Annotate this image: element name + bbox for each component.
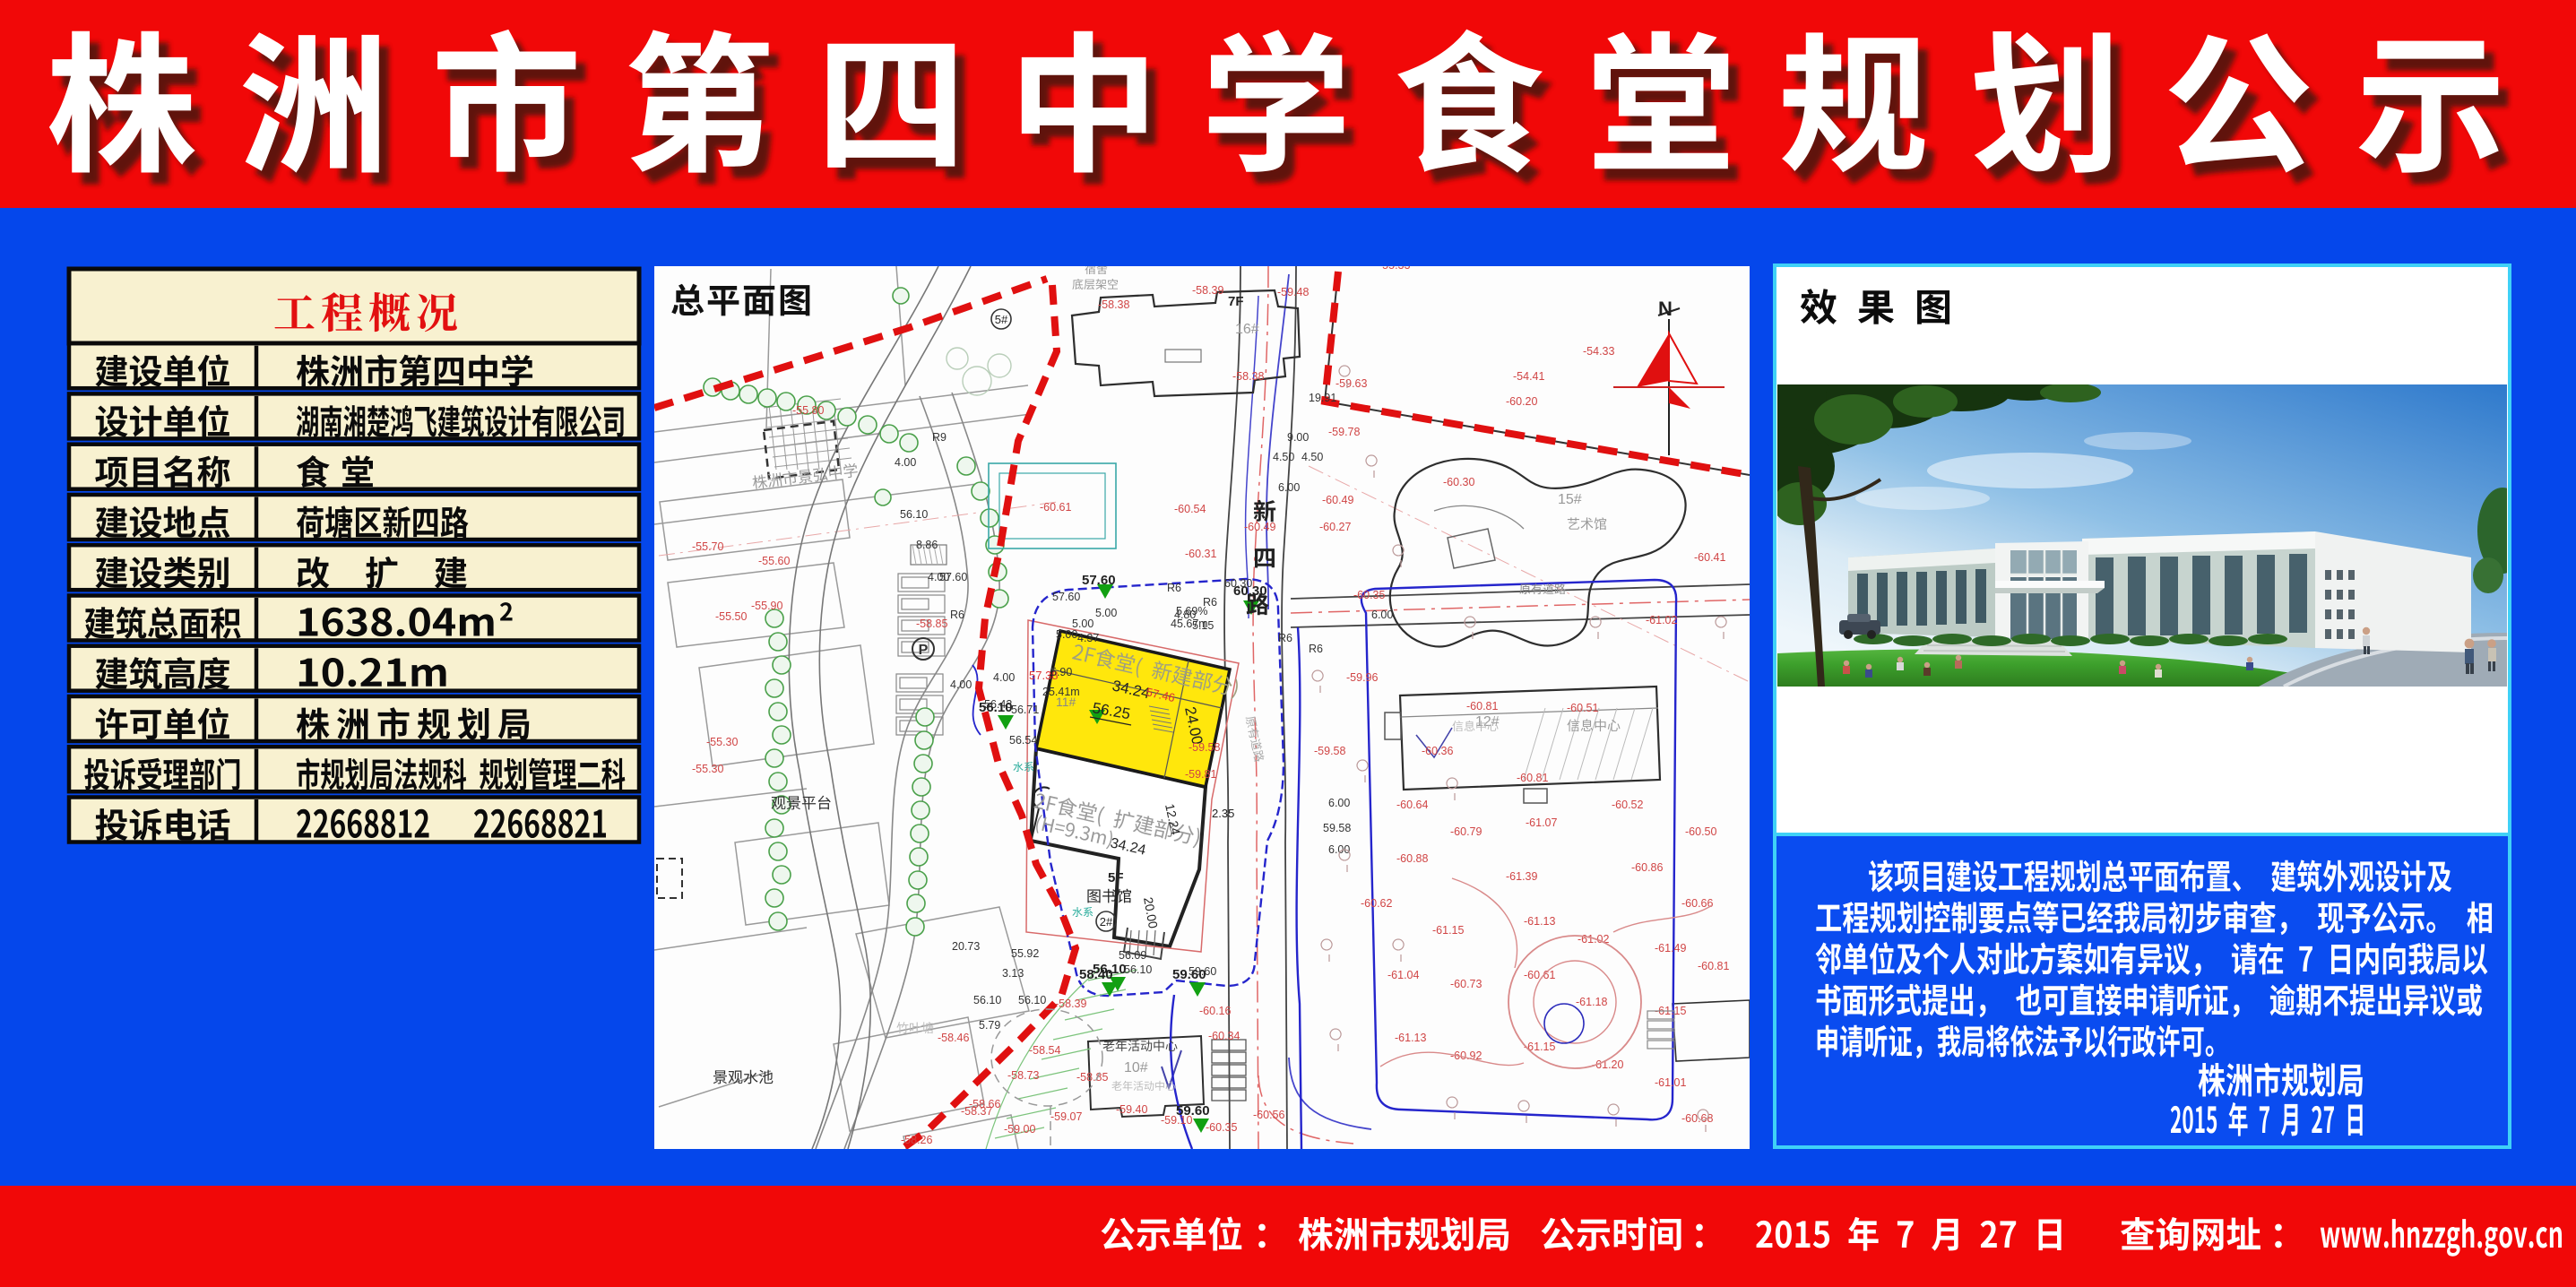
svg-text:N: N (1658, 298, 1673, 320)
svg-text:-60.73: -60.73 (1450, 978, 1482, 990)
svg-text:8.86: 8.86 (916, 539, 938, 551)
svg-text:R6: R6 (1278, 632, 1292, 644)
svg-text:-59.96: -59.96 (1346, 671, 1378, 684)
svg-text:2.35: 2.35 (1212, 807, 1234, 820)
svg-text:-61.13: -61.13 (1395, 1032, 1426, 1044)
svg-text:-60.79: -60.79 (1450, 825, 1482, 838)
svg-text:9.00: 9.00 (1287, 431, 1309, 444)
svg-text:-61.02: -61.02 (1646, 614, 1677, 626)
svg-text:5.90: 5.90 (1050, 666, 1072, 678)
svg-text:-58.39: -58.39 (1192, 284, 1223, 297)
svg-text:-58.39: -58.39 (1055, 998, 1086, 1010)
svg-text:-61.01: -61.01 (1655, 1076, 1686, 1089)
svg-text:7F: 7F (1228, 294, 1244, 309)
svg-text:-58.54: -58.54 (1029, 1044, 1060, 1057)
svg-text:5.15: 5.15 (1192, 619, 1214, 632)
svg-text:4.37: 4.37 (1077, 632, 1099, 644)
svg-text:-59.78: -59.78 (1328, 426, 1360, 438)
svg-text:15#: 15# (1558, 492, 1582, 507)
svg-text:6.00: 6.00 (1371, 609, 1393, 621)
svg-text:57.60: 57.60 (1052, 591, 1080, 603)
svg-text:-58.37: -58.37 (961, 1105, 992, 1118)
svg-text:-60.30: -60.30 (1443, 476, 1474, 488)
svg-text:19.91: 19.91 (1309, 392, 1336, 404)
svg-text:-61.13: -61.13 (1524, 915, 1555, 928)
svg-text:4.50: 4.50 (1301, 451, 1323, 463)
svg-text:-60.81: -60.81 (1698, 960, 1729, 972)
svg-text:4.50: 4.50 (1273, 451, 1294, 463)
svg-text:59.60: 59.60 (1189, 965, 1216, 978)
svg-text:-60.86: -60.86 (1631, 861, 1663, 874)
svg-text:-58.38: -58.38 (1098, 298, 1129, 311)
svg-text:-61.49: -61.49 (1655, 942, 1686, 954)
svg-text:P: P (919, 643, 929, 658)
svg-text:3.13: 3.13 (1002, 967, 1024, 980)
svg-text:58.40: 58.40 (1079, 967, 1113, 982)
svg-text:-60.36: -60.36 (1422, 745, 1453, 757)
svg-text:56.10: 56.10 (973, 994, 1001, 1006)
svg-text:-55.70: -55.70 (692, 540, 723, 553)
svg-text:-60.35: -60.35 (1206, 1121, 1237, 1134)
svg-text:56.10: 56.10 (900, 508, 928, 521)
svg-text:4.00: 4.00 (950, 678, 972, 691)
svg-text:-60.41: -60.41 (1694, 551, 1725, 564)
svg-text:6.00: 6.00 (1278, 481, 1300, 494)
svg-text:5.00: 5.00 (1095, 607, 1117, 619)
svg-text:-59.10: -59.10 (1161, 1114, 1192, 1127)
svg-text:-60.49: -60.49 (1244, 521, 1275, 533)
svg-text:-55.90: -55.90 (751, 600, 782, 612)
svg-text:-55.30: -55.30 (706, 736, 738, 748)
svg-text:-59.00: -59.00 (1004, 1123, 1035, 1136)
svg-text:56.10: 56.10 (1018, 994, 1046, 1006)
svg-text:5F: 5F (1108, 870, 1124, 885)
svg-text:-60.27: -60.27 (1319, 521, 1351, 533)
svg-text:-55.60: -55.60 (758, 555, 790, 567)
svg-text:-54.33: -54.33 (1583, 345, 1614, 358)
svg-text:-61.15: -61.15 (1432, 924, 1464, 937)
svg-text:-55.80: -55.80 (792, 404, 824, 417)
svg-text:5.79: 5.79 (979, 1019, 1000, 1032)
svg-text:R6: R6 (1203, 596, 1217, 609)
svg-text:R6: R6 (950, 609, 964, 621)
svg-text:16#: 16# (1235, 322, 1259, 337)
svg-text:R6: R6 (1309, 643, 1323, 655)
svg-text:-58.85: -58.85 (916, 618, 947, 630)
svg-text:-60.81: -60.81 (1517, 772, 1548, 784)
svg-text:-60.50: -60.50 (1685, 825, 1716, 838)
svg-text:56.54: 56.54 (1009, 734, 1037, 747)
svg-text:-58.46: -58.46 (938, 1032, 969, 1044)
svg-text:-60.64: -60.64 (1396, 799, 1428, 811)
svg-text:-58.38: -58.38 (1232, 370, 1264, 383)
svg-text:57.60: 57.60 (1082, 573, 1116, 588)
svg-text:-60.56: -60.56 (1253, 1109, 1284, 1121)
svg-text:4.00: 4.00 (895, 456, 916, 469)
svg-text:-61.18: -61.18 (1576, 996, 1607, 1008)
svg-text:-60.34: -60.34 (1208, 1030, 1240, 1042)
svg-text:-60.31: -60.31 (1185, 548, 1216, 560)
svg-text:-59.58: -59.58 (1314, 745, 1345, 757)
svg-text:-60.20: -60.20 (1506, 395, 1537, 408)
svg-text:-60.49: -60.49 (1322, 494, 1353, 506)
svg-text:6.00: 6.00 (1328, 797, 1350, 809)
svg-text:-60.62: -60.62 (1361, 897, 1392, 910)
svg-text:2#: 2# (1100, 915, 1113, 929)
svg-text:-60.81: -60.81 (1466, 700, 1498, 713)
svg-text:-58.73: -58.73 (1007, 1069, 1039, 1082)
svg-text:-60.54: -60.54 (1174, 503, 1206, 515)
svg-text:5#: 5# (995, 313, 1008, 326)
svg-text:-59.48: -59.48 (1277, 286, 1309, 298)
svg-text:R6: R6 (1167, 582, 1181, 594)
svg-text:57.60: 57.60 (939, 571, 967, 583)
svg-text:-59.81: -59.81 (1185, 768, 1216, 781)
svg-text:55.92: 55.92 (1011, 947, 1039, 960)
svg-text:-55.30: -55.30 (692, 763, 723, 775)
svg-text:56.10: 56.10 (1124, 963, 1152, 976)
svg-text:-60.52: -60.52 (1612, 799, 1643, 811)
svg-text:5.00: 5.00 (1056, 628, 1077, 641)
svg-text:-59.63: -59.63 (1336, 377, 1367, 390)
svg-text:25.41m: 25.41m (1042, 686, 1080, 698)
svg-text:-60.35: -60.35 (1353, 589, 1385, 601)
svg-text:-60.16: -60.16 (1199, 1005, 1231, 1017)
svg-text:-60.51: -60.51 (1567, 702, 1598, 714)
svg-text:10#: 10# (1124, 1060, 1148, 1075)
svg-text:20.73: 20.73 (952, 940, 980, 953)
svg-text:-61.02: -61.02 (1578, 933, 1609, 946)
svg-text:-60.61: -60.61 (1040, 501, 1071, 514)
svg-text:-59.07: -59.07 (1050, 1110, 1082, 1123)
svg-text:56.71: 56.71 (1011, 704, 1039, 716)
svg-text:-61.39: -61.39 (1506, 870, 1537, 883)
svg-text:60.30: 60.30 (1224, 577, 1252, 590)
svg-text:-55.50: -55.50 (715, 610, 747, 623)
svg-text:56.09: 56.09 (1119, 949, 1146, 962)
svg-text:-61.04: -61.04 (1387, 969, 1419, 981)
svg-text:-54.41: -54.41 (1513, 370, 1544, 383)
svg-text:R9: R9 (932, 431, 947, 444)
svg-text:4.00: 4.00 (993, 671, 1015, 684)
svg-text:-61.15: -61.15 (1524, 1041, 1555, 1053)
svg-text:-58.85: -58.85 (1076, 1071, 1108, 1084)
svg-text:-59.58: -59.58 (1189, 741, 1220, 754)
svg-text:-61.07: -61.07 (1526, 816, 1557, 829)
svg-text:59.58: 59.58 (1323, 822, 1351, 834)
svg-text:-59.40: -59.40 (1116, 1103, 1147, 1116)
svg-text:-60.88: -60.88 (1396, 852, 1428, 865)
svg-text:56.43: 56.43 (984, 698, 1012, 711)
svg-text:-58.26: -58.26 (901, 1134, 932, 1146)
